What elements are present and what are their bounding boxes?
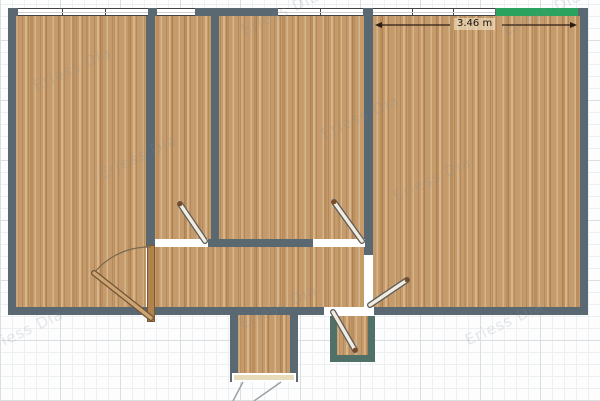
window-top-2[interactable] xyxy=(157,8,195,16)
wall-exterior-bottom[interactable] xyxy=(8,307,588,315)
window-divider xyxy=(62,9,63,15)
door-opening-wc[interactable] xyxy=(324,307,374,316)
wall-exterior-left[interactable] xyxy=(8,16,16,307)
wall-interior-a[interactable] xyxy=(146,16,155,247)
floorplan xyxy=(0,0,600,401)
wall-exterior-right[interactable] xyxy=(580,16,588,307)
floorplan-canvas: Eriess DiaEriess DiaEriess DiaEriess Dia… xyxy=(0,0,600,401)
window-divider xyxy=(453,9,454,15)
door-opening-room2[interactable] xyxy=(155,239,208,247)
door-opening-hall-room4[interactable] xyxy=(364,255,373,307)
wall-interior-b[interactable] xyxy=(211,16,219,247)
window-top-3[interactable] xyxy=(278,8,363,16)
window-divider xyxy=(412,9,413,15)
wall-segment-highlighted[interactable] xyxy=(496,8,578,16)
floor-wc[interactable] xyxy=(337,316,368,355)
window-top-4[interactable] xyxy=(373,8,495,16)
window-top-1[interactable] xyxy=(18,8,148,16)
floor-main[interactable] xyxy=(16,16,580,307)
door-balcony-panel xyxy=(234,375,294,380)
dimension-label: 3.46 m xyxy=(454,18,495,30)
window-divider xyxy=(105,9,106,15)
wall-wc-bottom[interactable] xyxy=(330,355,375,362)
wall-balcony-left[interactable] xyxy=(230,315,238,382)
door-opening-room3[interactable] xyxy=(313,239,365,247)
wall-balcony-right[interactable] xyxy=(290,315,298,382)
door-room1-closed-leaf[interactable] xyxy=(147,245,155,322)
window-divider xyxy=(320,9,321,15)
floor-balcony[interactable] xyxy=(238,315,290,373)
